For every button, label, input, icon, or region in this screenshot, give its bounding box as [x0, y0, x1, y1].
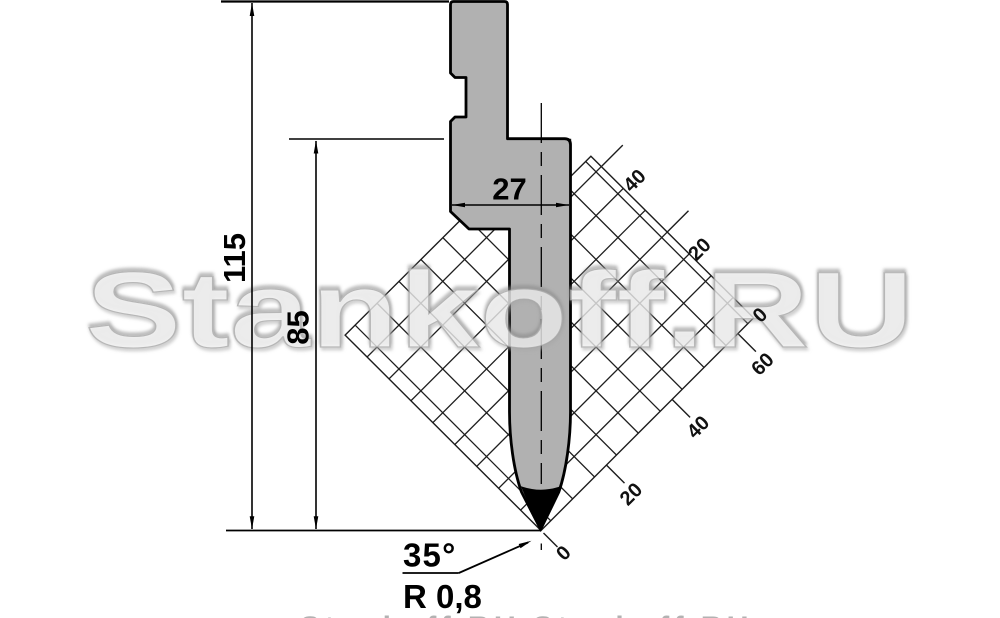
- svg-text:R 0,8: R 0,8: [403, 578, 482, 615]
- svg-text:Stankoff.RU: Stankoff.RU: [85, 249, 914, 370]
- svg-text:40: 40: [683, 412, 714, 443]
- svg-text:115: 115: [217, 233, 252, 283]
- svg-text:20: 20: [616, 479, 647, 510]
- svg-text:85: 85: [281, 310, 316, 344]
- svg-text:27: 27: [492, 172, 526, 207]
- svg-text:0: 0: [552, 542, 575, 565]
- svg-text:35°: 35°: [403, 537, 457, 574]
- svg-text:40: 40: [619, 165, 650, 196]
- svg-text:Stankoff.RU Stankoff.RU: Stankoff.RU Stankoff.RU: [300, 611, 753, 618]
